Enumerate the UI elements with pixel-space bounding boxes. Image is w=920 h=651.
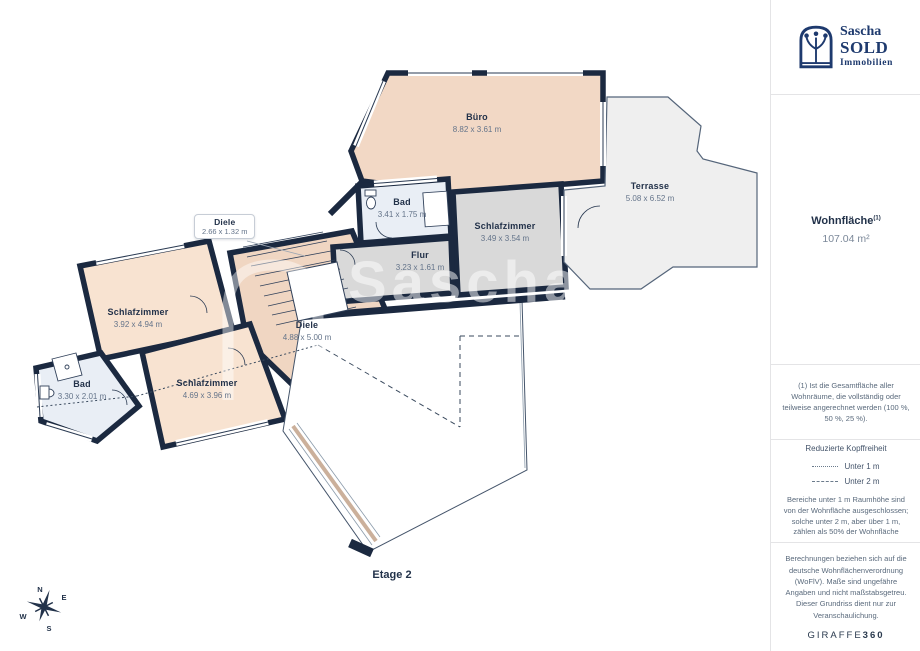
room-label-schlafzimmer-left: Schlafzimmer 3.92 x 4.94 m <box>108 306 169 330</box>
shower-drain <box>65 365 69 369</box>
room-dimensions: 3.49 x 3.54 m <box>475 233 536 244</box>
brand-suffix: 360 <box>863 630 885 641</box>
room-dimensions: 4.69 x 3.96 m <box>177 390 238 401</box>
disclaimer-text: Berechnungen beziehen sich auf die deuts… <box>780 553 912 621</box>
room-label-schlafzimmer-bottom: Schlafzimmer 4.69 x 3.96 m <box>177 377 238 401</box>
sidebar: Sascha SOLD Immobilien Wohnfläche(1) 107… <box>770 0 920 651</box>
footnote-text: (1) Ist die Gesamtfläche aller Wohnräume… <box>780 380 912 425</box>
legend-note: Bereiche unter 1 m Raumhöhe sind von der… <box>780 495 912 539</box>
room-label-bad-left: Bad 3.30 x 2.01 m <box>58 378 106 402</box>
room-label-buero: Büro 8.82 x 3.61 m <box>453 111 501 135</box>
watermark-text-1: Sascha <box>348 250 581 315</box>
living-area-title: Wohnfläche(1) <box>811 215 880 227</box>
compass-w-label: W <box>19 612 27 621</box>
living-area-value: 107.04 m² <box>822 233 869 245</box>
cistern-fixture <box>365 190 376 196</box>
room-name: Schlafzimmer <box>475 220 536 233</box>
logo-tree-window-icon <box>799 24 833 70</box>
legend-row-under-1m: Unter 1 m <box>812 462 879 471</box>
room-name: Schlafzimmer <box>177 377 238 390</box>
compass-rose: N E W S <box>19 584 66 633</box>
dotted-line-sample <box>812 466 838 467</box>
room-name: Bad <box>58 378 106 391</box>
room-name: Flur <box>396 249 444 262</box>
room-name: Terrasse <box>626 180 674 193</box>
room-dimensions: 3.30 x 2.01 m <box>58 391 106 402</box>
logo-wordmark: Sascha SOLD Immobilien <box>840 25 893 70</box>
room-label-bad-og: Bad 3.41 x 1.75 m <box>378 196 426 220</box>
legend-row-under-2m: Unter 2 m <box>812 477 879 486</box>
room-name: Schlafzimmer <box>108 306 169 319</box>
compass-s-label: S <box>46 624 51 633</box>
room-dimensions: 8.82 x 3.61 m <box>453 124 501 135</box>
room-dimensions: 3.23 x 1.61 m <box>396 262 444 273</box>
room-name: Büro <box>453 111 501 124</box>
room-dimensions: 5.08 x 6.52 m <box>626 193 674 204</box>
giraffe360-brand: GIRAFFE360 <box>807 630 884 641</box>
dashed-line-sample <box>812 481 838 482</box>
room-dimensions: 3.92 x 4.94 m <box>108 319 169 330</box>
room-name: Diele <box>202 217 247 227</box>
legend-title: Reduzierte Kopffreiheit <box>805 444 886 453</box>
room-name: Bad <box>378 196 426 209</box>
toilet-fixture <box>40 386 49 399</box>
disclaimer-section: Berechnungen beziehen sich auf die deuts… <box>771 543 920 651</box>
compass-n-label: N <box>37 585 42 594</box>
room-label-schlafzimmer-right: Schlafzimmer 3.49 x 3.54 m <box>475 220 536 244</box>
shower-fixture <box>423 191 449 227</box>
brand-name: GIRAFFE <box>807 630 862 641</box>
floorplan-page: Sascha S N E W S Büro 8.82 x 3.61 m Bad … <box>0 0 920 651</box>
footnote-section: (1) Ist die Gesamtfläche aller Wohnräume… <box>771 365 920 440</box>
living-area-section: Wohnfläche(1) 107.04 m² <box>771 95 920 365</box>
legend-label: Unter 1 m <box>844 462 879 471</box>
logo-line2: SOLD <box>840 39 893 57</box>
toilet-fixture <box>367 197 376 209</box>
legend-label: Unter 2 m <box>844 477 879 486</box>
logo-line1: Sascha <box>840 25 893 40</box>
logo-line3: Immobilien <box>840 57 893 69</box>
room-dimensions: 2.66 x 1.32 m <box>202 227 247 236</box>
room-dimensions: 4.88 x 5.00 m <box>283 332 331 343</box>
room-name: Diele <box>283 319 331 332</box>
room-label-diele-center: Diele 4.88 x 5.00 m <box>283 319 331 343</box>
compass-e-label: E <box>61 593 66 602</box>
living-area-label: Wohnfläche <box>811 215 873 227</box>
room-dimensions: 3.41 x 1.75 m <box>378 209 426 220</box>
company-logo: Sascha SOLD Immobilien <box>771 0 920 95</box>
room-label-flur: Flur 3.23 x 1.61 m <box>396 249 444 273</box>
living-area-footnote-marker: (1) <box>873 215 880 221</box>
watermark-text-2: S <box>352 310 395 382</box>
room-label-terrasse: Terrasse 5.08 x 6.52 m <box>626 180 674 204</box>
room-callout-diele: Diele 2.66 x 1.32 m <box>194 214 255 239</box>
headroom-legend-section: Reduzierte Kopffreiheit Unter 1 m Unter … <box>771 440 920 543</box>
floor-label: Etage 2 <box>372 569 411 581</box>
